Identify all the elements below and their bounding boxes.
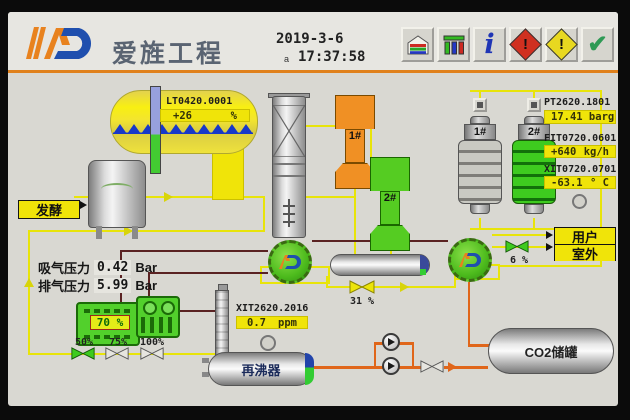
fermenter-nav-button[interactable]: 发酵 [18,200,80,219]
co2-storage-tank: CO2储罐 [488,328,614,374]
trend-button[interactable] [437,27,470,62]
compressor-load-box: 70 % [90,315,130,330]
fermenter-arrow-icon [80,201,87,209]
level-value-box: +26 % [160,109,250,122]
pipe-loop-top [28,230,265,232]
dryer-2-valve-box[interactable] [527,98,541,112]
compressor-fins [84,309,132,313]
toolbar: i ! ! ✔ [401,27,614,62]
alarm-critical-button[interactable]: ! [509,27,542,62]
temperature-value-box: -63.1 ° C [544,176,616,189]
tank-leg [132,226,138,239]
pipe-dryer-top [470,90,602,92]
reboiler-nozzle [202,358,209,363]
pipe-loop-join [263,196,265,230]
flow-arrow-up [24,278,34,287]
dryer-2-label: 2# [528,126,540,138]
pipe-recycle-line [326,286,456,288]
sparge-tick [283,213,295,215]
discharge-pressure-value: 5.99 [94,278,131,293]
pipe-maroon-3 [148,272,268,274]
supply-valve[interactable] [505,240,529,253]
pipe-user-line [492,234,546,236]
tank-inlet-valve[interactable] [420,360,444,373]
separator-drain-dot [420,269,426,275]
motor-port-icon [161,301,175,315]
checkmark-icon: ✔ [587,33,607,57]
info-button[interactable]: i [473,27,506,62]
co2-pump-2 [382,357,400,375]
seal-tank-level-mark [101,183,133,195]
packing-x-icon [273,105,305,157]
home-icon [406,34,430,56]
alarm-yellow-diamond-icon: ! [545,28,578,61]
pipe-loop-left [28,230,30,355]
recycle-valve[interactable] [348,280,376,294]
user-nav-button[interactable]: 用户 [555,228,615,245]
reboiler-vessel: 再沸器 [208,352,314,386]
filter-2-label: 2# [381,192,399,204]
water-level-zigzag [113,124,253,134]
column-ring [273,163,305,165]
carbon-filter-1: 1# [335,95,375,189]
pipe-pump-branch-r [412,342,414,366]
discharge-pressure-row: 排气压力 5.99 Bar [38,276,157,295]
dryer-1-label: 1# [474,126,486,138]
date-display: 2019-3-6 [276,31,343,47]
compressor-motor [136,296,180,338]
pipe-to-filter [306,196,356,198]
pump-rotor-icon [388,338,395,346]
column-ring [273,175,305,177]
heat-exchanger-2 [448,238,492,282]
suction-pressure-value: 0.42 [94,260,131,275]
time-marker: a [284,54,289,64]
alarm-red-diamond-icon: ! [509,28,542,61]
flow-value-box: +640 kg/h [544,145,616,158]
alarm-warning-button[interactable]: ! [545,27,578,62]
scrub-column [272,96,306,238]
filter-1-label: 1# [346,130,364,142]
valve-box-icon [531,102,537,108]
reboiler-end-cap [305,353,314,385]
ad-logo-icon [458,252,482,268]
flow-arrow-right [400,282,409,292]
sparge-tick [283,221,295,223]
hmi-screen: 爱旌工程 2019-3-6 a 17:37:58 i ! [8,12,618,406]
dryer-1-valve-box[interactable] [473,98,487,112]
pressure-value-box: 17.41 barg [544,110,616,124]
level-gauge [150,86,161,174]
arrow-to-user [546,231,553,239]
seal-tank [88,160,146,228]
info-icon: i [484,31,494,58]
step-valve-100[interactable] [139,347,165,360]
level-tag: LT0420.0001 [166,96,232,107]
co2-tank-label: CO2储罐 [525,342,578,361]
arrow-to-outdoor [546,243,553,251]
valve-box-icon [477,102,483,108]
flow-tag: FIT0720.0601 [544,133,616,144]
acknowledge-button[interactable]: ✔ [581,27,614,62]
home-button[interactable] [401,27,434,62]
company-name: 爱旌工程 [112,34,224,70]
pipe-to-tank-upper [468,344,490,347]
pipe-exchanger2-down [468,282,470,344]
tank-outlet-pipe [212,148,244,200]
sparge-tick [283,205,295,207]
ad-logo-icon [278,254,302,270]
motor-fins [141,317,175,333]
pipe-dryer2-stem-bot [533,218,535,228]
separator-vessel [330,254,430,276]
tank-leg [96,226,102,239]
status-indicator [572,194,587,209]
pipe-recycle-up1 [326,276,328,286]
recycle-valve-position: 31 % [350,296,374,307]
company-logo-icon [24,25,104,61]
flow-arrow-right [164,192,173,202]
step-valve-75[interactable] [104,347,130,360]
motor-port-icon [143,301,157,315]
purity-value-box: 0.7 ppm [236,316,308,329]
pipe-pump-branch-l [374,342,376,366]
header-divider [8,70,618,73]
flow-arrow-orange [448,362,457,372]
pump-rotor-icon [388,362,395,370]
suction-pressure-row: 吸气压力 0.42 Bar [38,258,157,277]
co2-pump-1 [382,333,400,351]
supply-valve-position: 6 % [510,255,528,266]
purity-tag: XIT2620.2016 [236,303,308,314]
outdoor-nav-button[interactable]: 室外 [555,245,615,261]
trend-chart-icon [442,34,466,56]
temperature-tag: XIT0720.0701 [544,164,616,175]
heat-exchanger-1 [268,240,312,284]
pipe-maroon-1 [120,250,268,252]
dryer-tower-1: 1# [458,116,502,214]
reboiler-label: 再沸器 [241,360,280,379]
pipe-reboiler-out [314,366,424,369]
pipe-recycle-up2 [454,280,456,288]
step-valve-50[interactable] [70,347,96,360]
destination-buttons: 用户 室外 [554,227,616,261]
time-display: 17:37:58 [298,49,365,65]
pressure-tag: PT2620.1801 [544,97,610,108]
status-indicator [260,335,276,351]
pipe-dryer1-stem-bot [479,218,481,228]
carbon-filter-2: 2# [370,157,410,251]
